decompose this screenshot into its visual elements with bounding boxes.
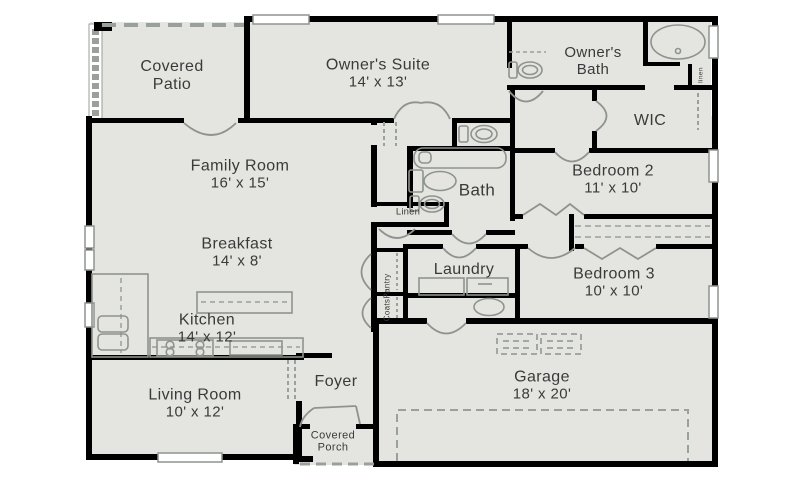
label-family-room: Family Room 16' x 15' [191, 158, 290, 193]
label-coats: Coats [384, 299, 393, 321]
room-dims: 10' x 12' [148, 405, 241, 422]
label-bedroom-3: Bedroom 3 10' x 10' [573, 266, 655, 301]
room-dims: 18' x 20' [513, 387, 572, 404]
room-dims: 10' x 10' [573, 284, 655, 301]
label-bedroom-2: Bedroom 2 11' x 10' [572, 163, 654, 198]
room-dims: 16' x 15' [191, 176, 290, 193]
label-pantry: Pantry [384, 274, 393, 299]
label-covered-porch: Covered Porch [301, 430, 366, 453]
label-laundry: Laundry [434, 261, 495, 279]
label-linen: Linen [396, 208, 420, 219]
room-name: Family Room [191, 158, 290, 176]
room-name: Kitchen [178, 312, 237, 330]
room-name: Bedroom 3 [573, 266, 655, 284]
room-name: Owner's Suite [326, 57, 430, 75]
label-linen-upper: linen [697, 67, 704, 83]
room-dims: 14' x 8' [201, 254, 272, 271]
label-foyer: Foyer [315, 373, 358, 391]
room-name: Bedroom 2 [572, 163, 654, 181]
room-name: Living Room [148, 387, 241, 405]
label-breakfast: Breakfast 14' x 8' [201, 236, 272, 271]
room-dims: 14' x 12' [178, 330, 237, 347]
label-owners-suite: Owner's Suite 14' x 13' [326, 57, 430, 92]
label-wic: WIC [634, 112, 666, 130]
label-owners-bath: Owner's Bath [551, 45, 636, 79]
label-garage: Garage 18' x 20' [513, 369, 572, 404]
floor-plan: Covered Patio Owner's Suite 14' x 13' Ow… [0, 0, 800, 500]
room-name: Breakfast [201, 236, 272, 254]
room-dims: 11' x 10' [572, 181, 654, 198]
label-kitchen: Kitchen 14' x 12' [178, 312, 237, 347]
room-name: Garage [513, 369, 572, 387]
label-living-room: Living Room 10' x 12' [148, 387, 241, 422]
label-bath: Bath [459, 180, 496, 199]
label-covered-patio: Covered Patio [125, 58, 220, 94]
room-dims: 14' x 13' [326, 75, 430, 92]
